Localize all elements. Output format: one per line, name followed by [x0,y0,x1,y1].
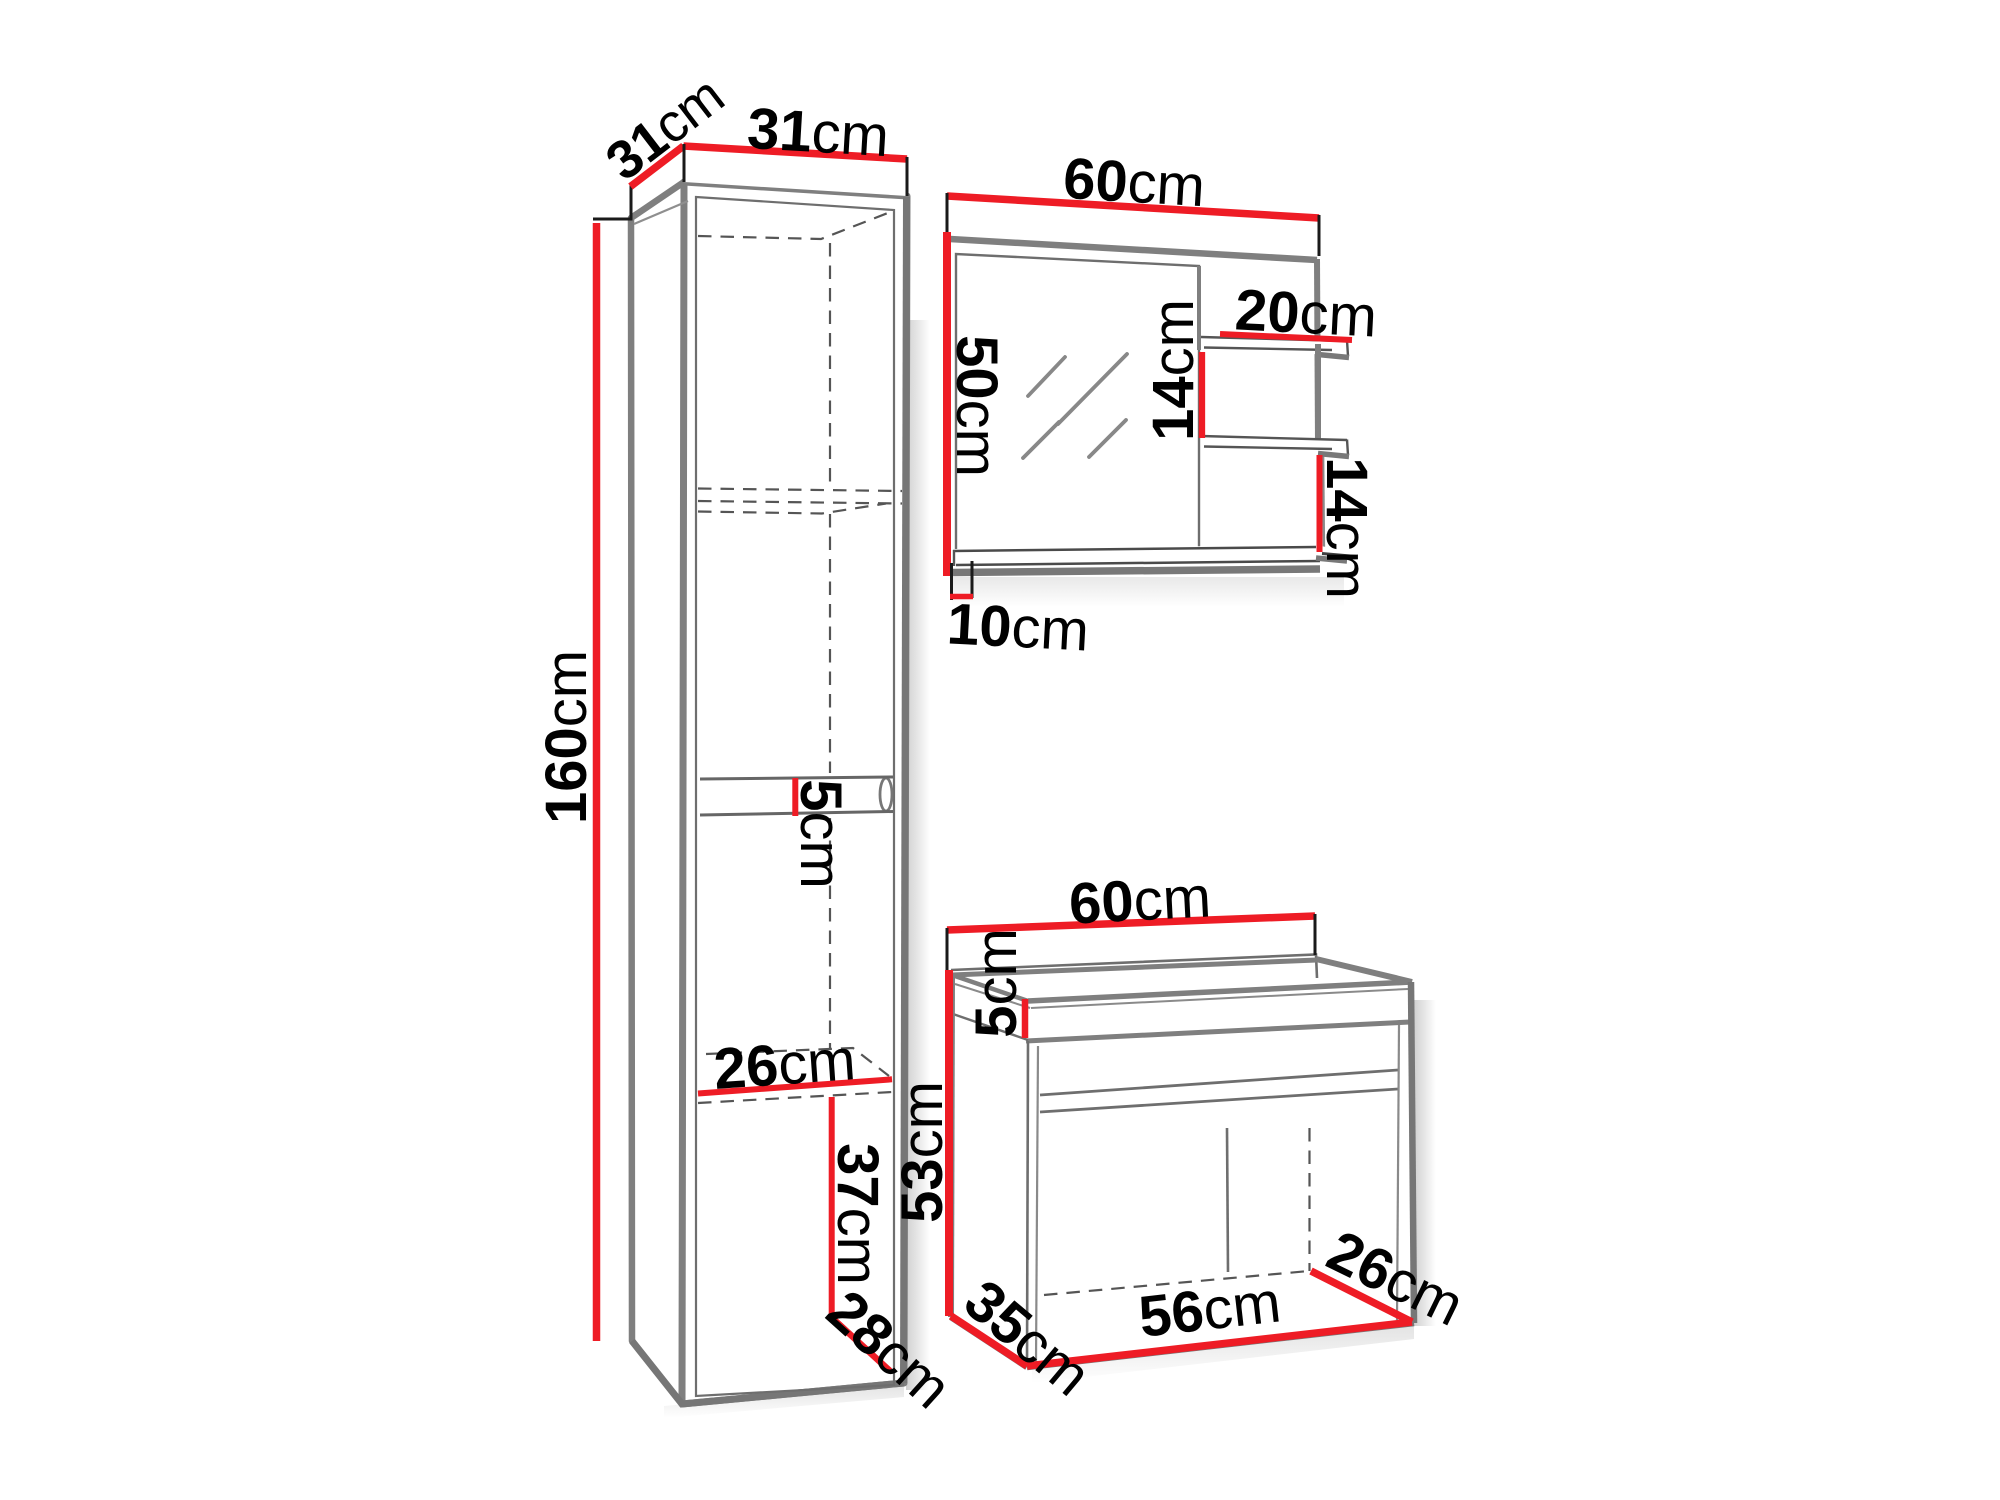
svg-text:26cm: 26cm [712,1027,858,1102]
svg-text:53cm: 53cm [890,1081,955,1223]
svg-text:14cm: 14cm [1314,457,1379,599]
svg-text:10cm: 10cm [945,591,1090,663]
svg-text:20cm: 20cm [1233,277,1378,349]
svg-text:60cm: 60cm [1061,146,1206,219]
svg-text:14cm: 14cm [1141,299,1206,441]
svg-text:31cm: 31cm [745,96,890,169]
svg-text:50cm: 50cm [944,335,1009,477]
svg-text:5cm: 5cm [964,928,1029,1038]
svg-text:60cm: 60cm [1067,864,1212,936]
svg-text:160cm: 160cm [534,650,599,824]
svg-text:37cm: 37cm [825,1143,890,1285]
svg-text:5cm: 5cm [788,779,853,889]
